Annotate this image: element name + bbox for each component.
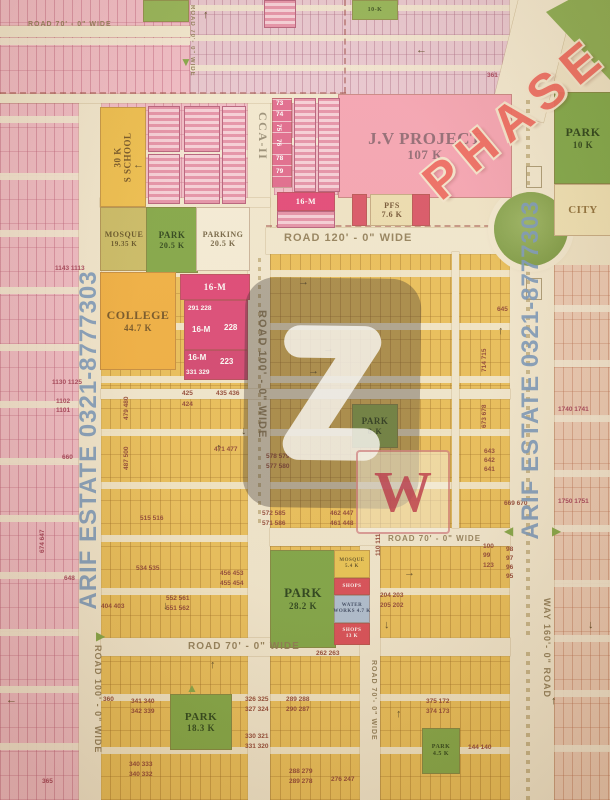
direction-arrow-icon: ↑ [210, 660, 216, 671]
road-triangle-marker-icon: ▲ [186, 682, 198, 694]
direction-arrow-icon: ↑ [396, 709, 402, 720]
direction-arrow-icon: ↑ [216, 443, 222, 454]
direction-arrow-icon: ↑ [551, 696, 557, 707]
direction-arrow-icon: ← [416, 45, 427, 56]
direction-arrow-icon: ↓ [588, 620, 594, 631]
w-watermark: W [356, 450, 450, 534]
road-triangle-marker-icon: ▼ [180, 56, 192, 68]
direction-arrow-icon: ↓ [384, 620, 390, 631]
direction-arrow-icon: → [404, 568, 415, 579]
road-triangle-marker-icon: ▶ [552, 525, 561, 537]
direction-arrow-icon: ← [133, 160, 144, 171]
society-map: 30 KS SCHOOLMOSQUE19.35 KPARK20.5 KPARKI… [0, 0, 610, 800]
w-letter: W [374, 463, 432, 521]
estate-phone-right: ARIF ESTATE 0321-8777303 [517, 160, 545, 580]
direction-arrow-icon: ↓ [163, 601, 169, 612]
road-triangle-marker-icon: ◀ [504, 525, 513, 537]
direction-arrow-icon: ← [6, 695, 17, 706]
direction-arrow-icon: ↑ [498, 326, 504, 337]
estate-phone-left: ARIF ESTATE 0321-8777303 [75, 230, 103, 650]
direction-arrow-icon: ↑ [203, 10, 209, 21]
